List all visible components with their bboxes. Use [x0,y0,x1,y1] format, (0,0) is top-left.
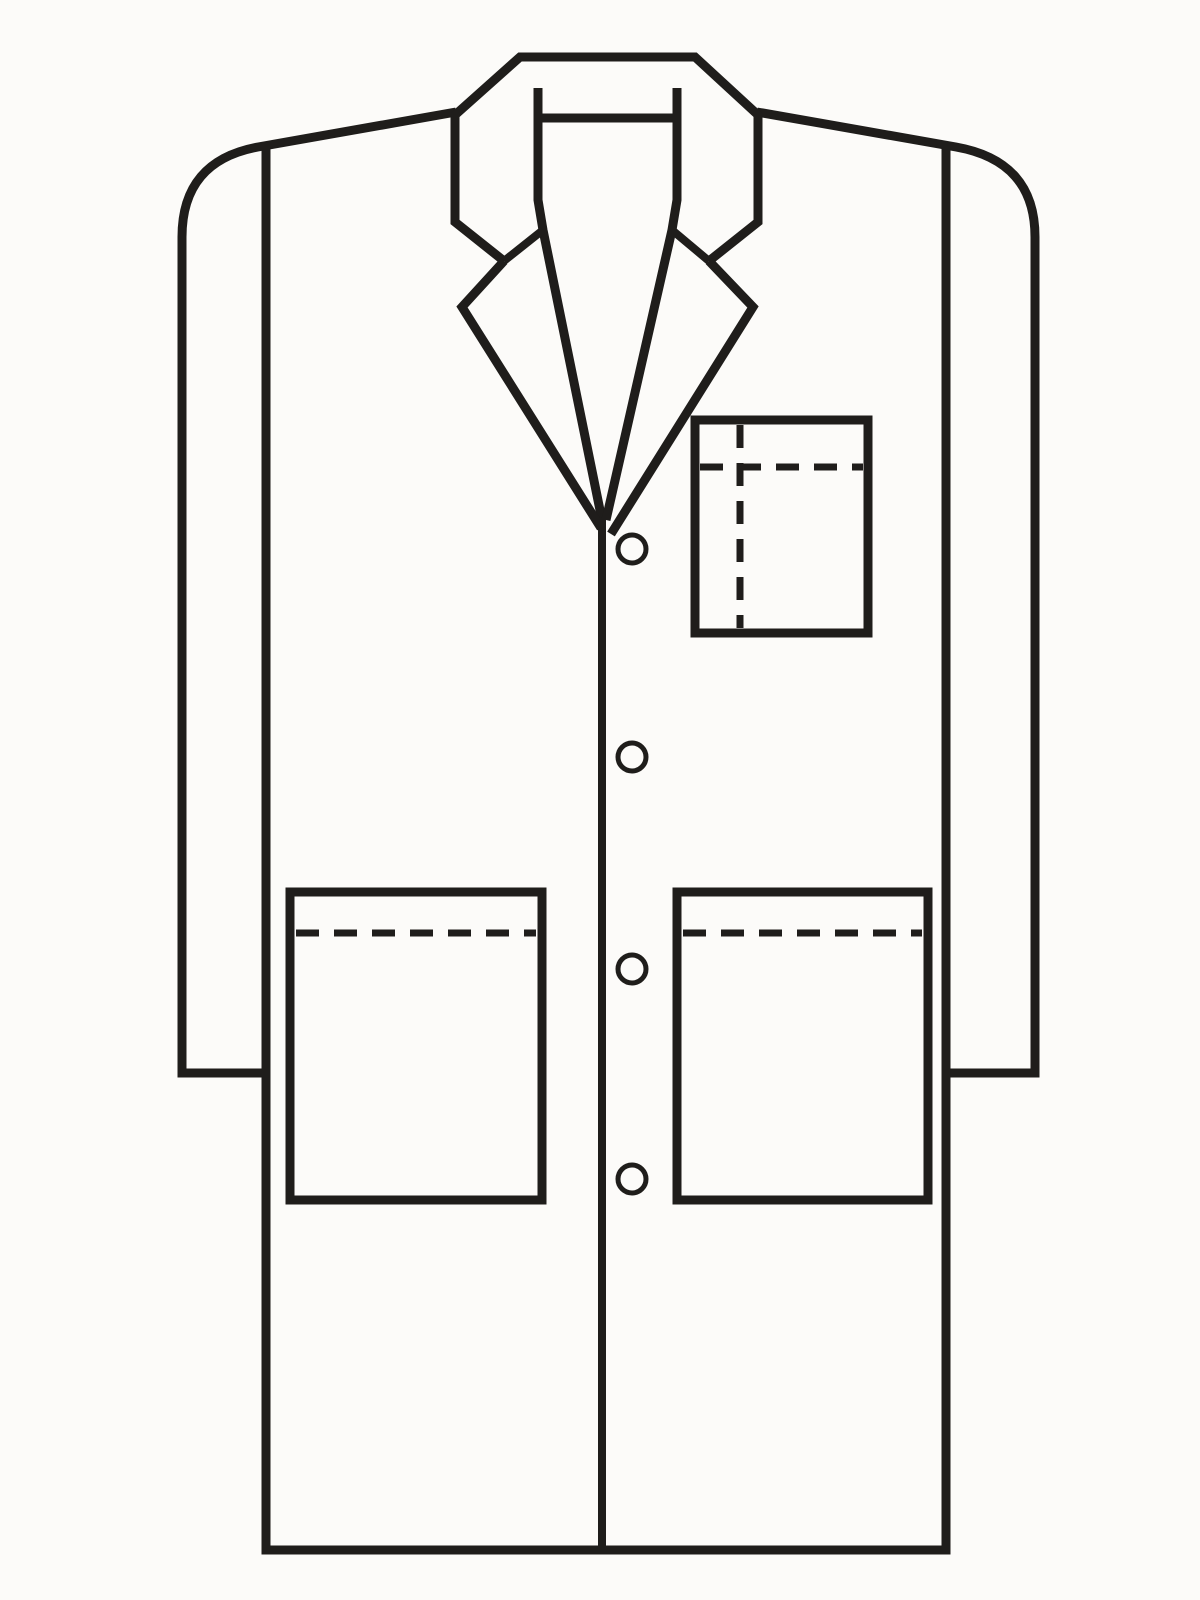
gorge-seam-right [672,230,709,261]
left-shoulder-and-sleeve-outline [182,112,456,1073]
neckline-left [538,88,602,520]
front-button-3 [618,955,646,983]
front-button-2 [618,743,646,771]
hip-pocket-left [290,892,542,1200]
chest-pocket [695,420,868,633]
lab-coat-illustration [0,0,1200,1600]
front-button-1 [618,535,646,563]
neckline-right [606,88,677,520]
right-shoulder-and-sleeve-outline [757,112,1035,1073]
gorge-seam-left [504,230,543,261]
hip-pocket-right [677,892,928,1200]
illustration-canvas [0,0,1200,1600]
front-button-4 [618,1165,646,1193]
collar-outer-edge [455,57,758,261]
